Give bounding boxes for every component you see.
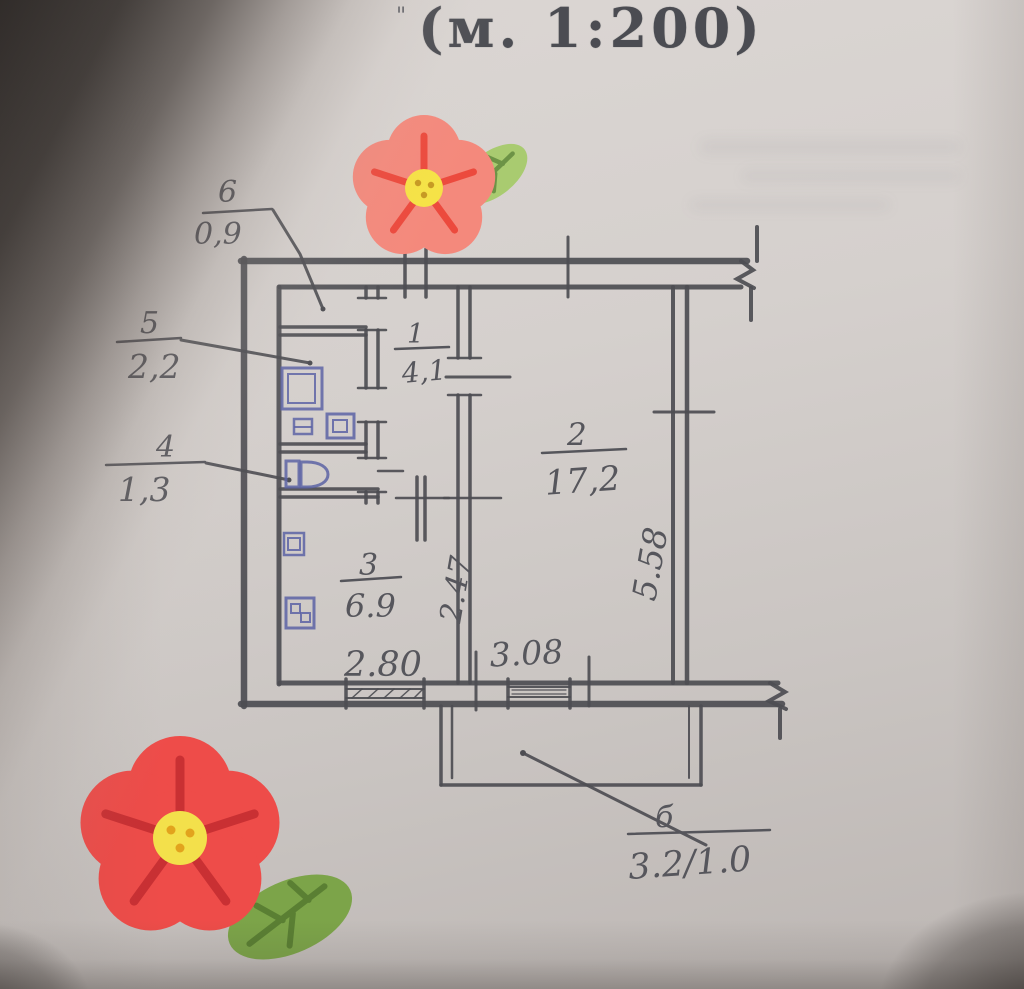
balcony-area: 3.2/1.0 (627, 839, 753, 887)
room-1-number: 1 (407, 319, 424, 350)
dimension-right-depth: 5.58 (624, 524, 675, 603)
flower-sticker-top (338, 108, 548, 263)
dimension-bottom-right: 3.08 (489, 632, 564, 675)
callout-4-area: 1,3 (118, 470, 170, 509)
balcony-label: б (655, 800, 674, 835)
kitchen-sink-inner (288, 538, 300, 550)
room-2-number: 2 (566, 417, 587, 453)
floor-plan-photo: " (м. 1:200) (0, 0, 1024, 989)
flower-center (405, 169, 443, 207)
toilet-bowl-icon (301, 462, 328, 487)
callout-5-area: 2,2 (127, 347, 180, 386)
washer-inner (333, 420, 347, 432)
callout-4-number: 4 (155, 430, 175, 465)
callout-5-number: 5 (140, 306, 159, 341)
callout-6-number: 6 (218, 175, 237, 210)
stove-burner (301, 613, 310, 622)
room-2-area: 17,2 (543, 459, 621, 504)
room-1-area: 4,1 (399, 353, 447, 390)
washer-icon (327, 414, 354, 438)
toilet-tank-icon (286, 461, 299, 487)
bathtub-inner (288, 374, 315, 403)
dimension-bottom-left: 2.80 (343, 645, 422, 685)
stove-burner (291, 604, 300, 613)
callout-6-area: 0,9 (194, 217, 242, 252)
flower-sticker-bottom (52, 702, 372, 982)
dimension-inner-depth: 2.47 (433, 553, 479, 627)
room-3-number: 3 (359, 548, 378, 583)
flower-center (153, 811, 207, 865)
room-3-area: 6.9 (345, 587, 396, 625)
